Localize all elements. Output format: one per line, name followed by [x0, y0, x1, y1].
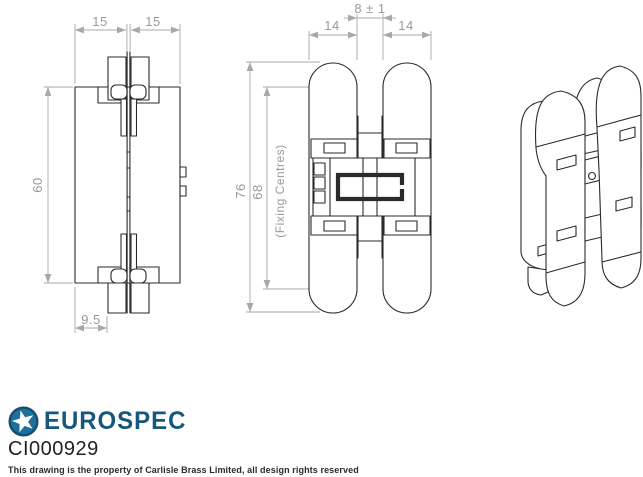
eurospec-logo — [8, 406, 39, 437]
dim-label-fixing-centres: (Fixing Centres) — [273, 144, 287, 237]
brand-name: EUROSPEC — [44, 407, 186, 436]
dim-label-front-76: 76 — [233, 183, 248, 198]
dim-label-front-right-14: 14 — [398, 18, 413, 33]
title-block: EUROSPEC CI000929 This drawing is the pr… — [8, 406, 359, 475]
product-code: CI000929 — [8, 438, 359, 461]
screw-hole — [589, 173, 596, 180]
drawing-sheet: 15 15 60 9.5 — [0, 0, 643, 477]
plan-view: 15 15 60 9.5 — [30, 14, 186, 333]
dim-label-front-left-14: 14 — [324, 18, 339, 33]
dim-label-plan-left-15: 15 — [92, 14, 107, 29]
dim-label-plan-right-15: 15 — [145, 14, 160, 29]
brand-row: EUROSPEC — [8, 406, 359, 437]
plan-body — [75, 52, 186, 313]
dim-label-front-68: 68 — [250, 184, 265, 199]
front-view: 8 ± 1 14 14 76 68 (Fixing Centres) — [233, 1, 431, 313]
isometric-view — [521, 66, 641, 306]
copyright-text: This drawing is the property of Carlisle… — [8, 465, 359, 475]
dim-label-plan-9-5: 9.5 — [81, 312, 101, 327]
front-body — [309, 63, 431, 313]
dim-label-front-gap: 8 ± 1 — [354, 1, 385, 16]
dim-label-plan-60: 60 — [30, 177, 45, 192]
